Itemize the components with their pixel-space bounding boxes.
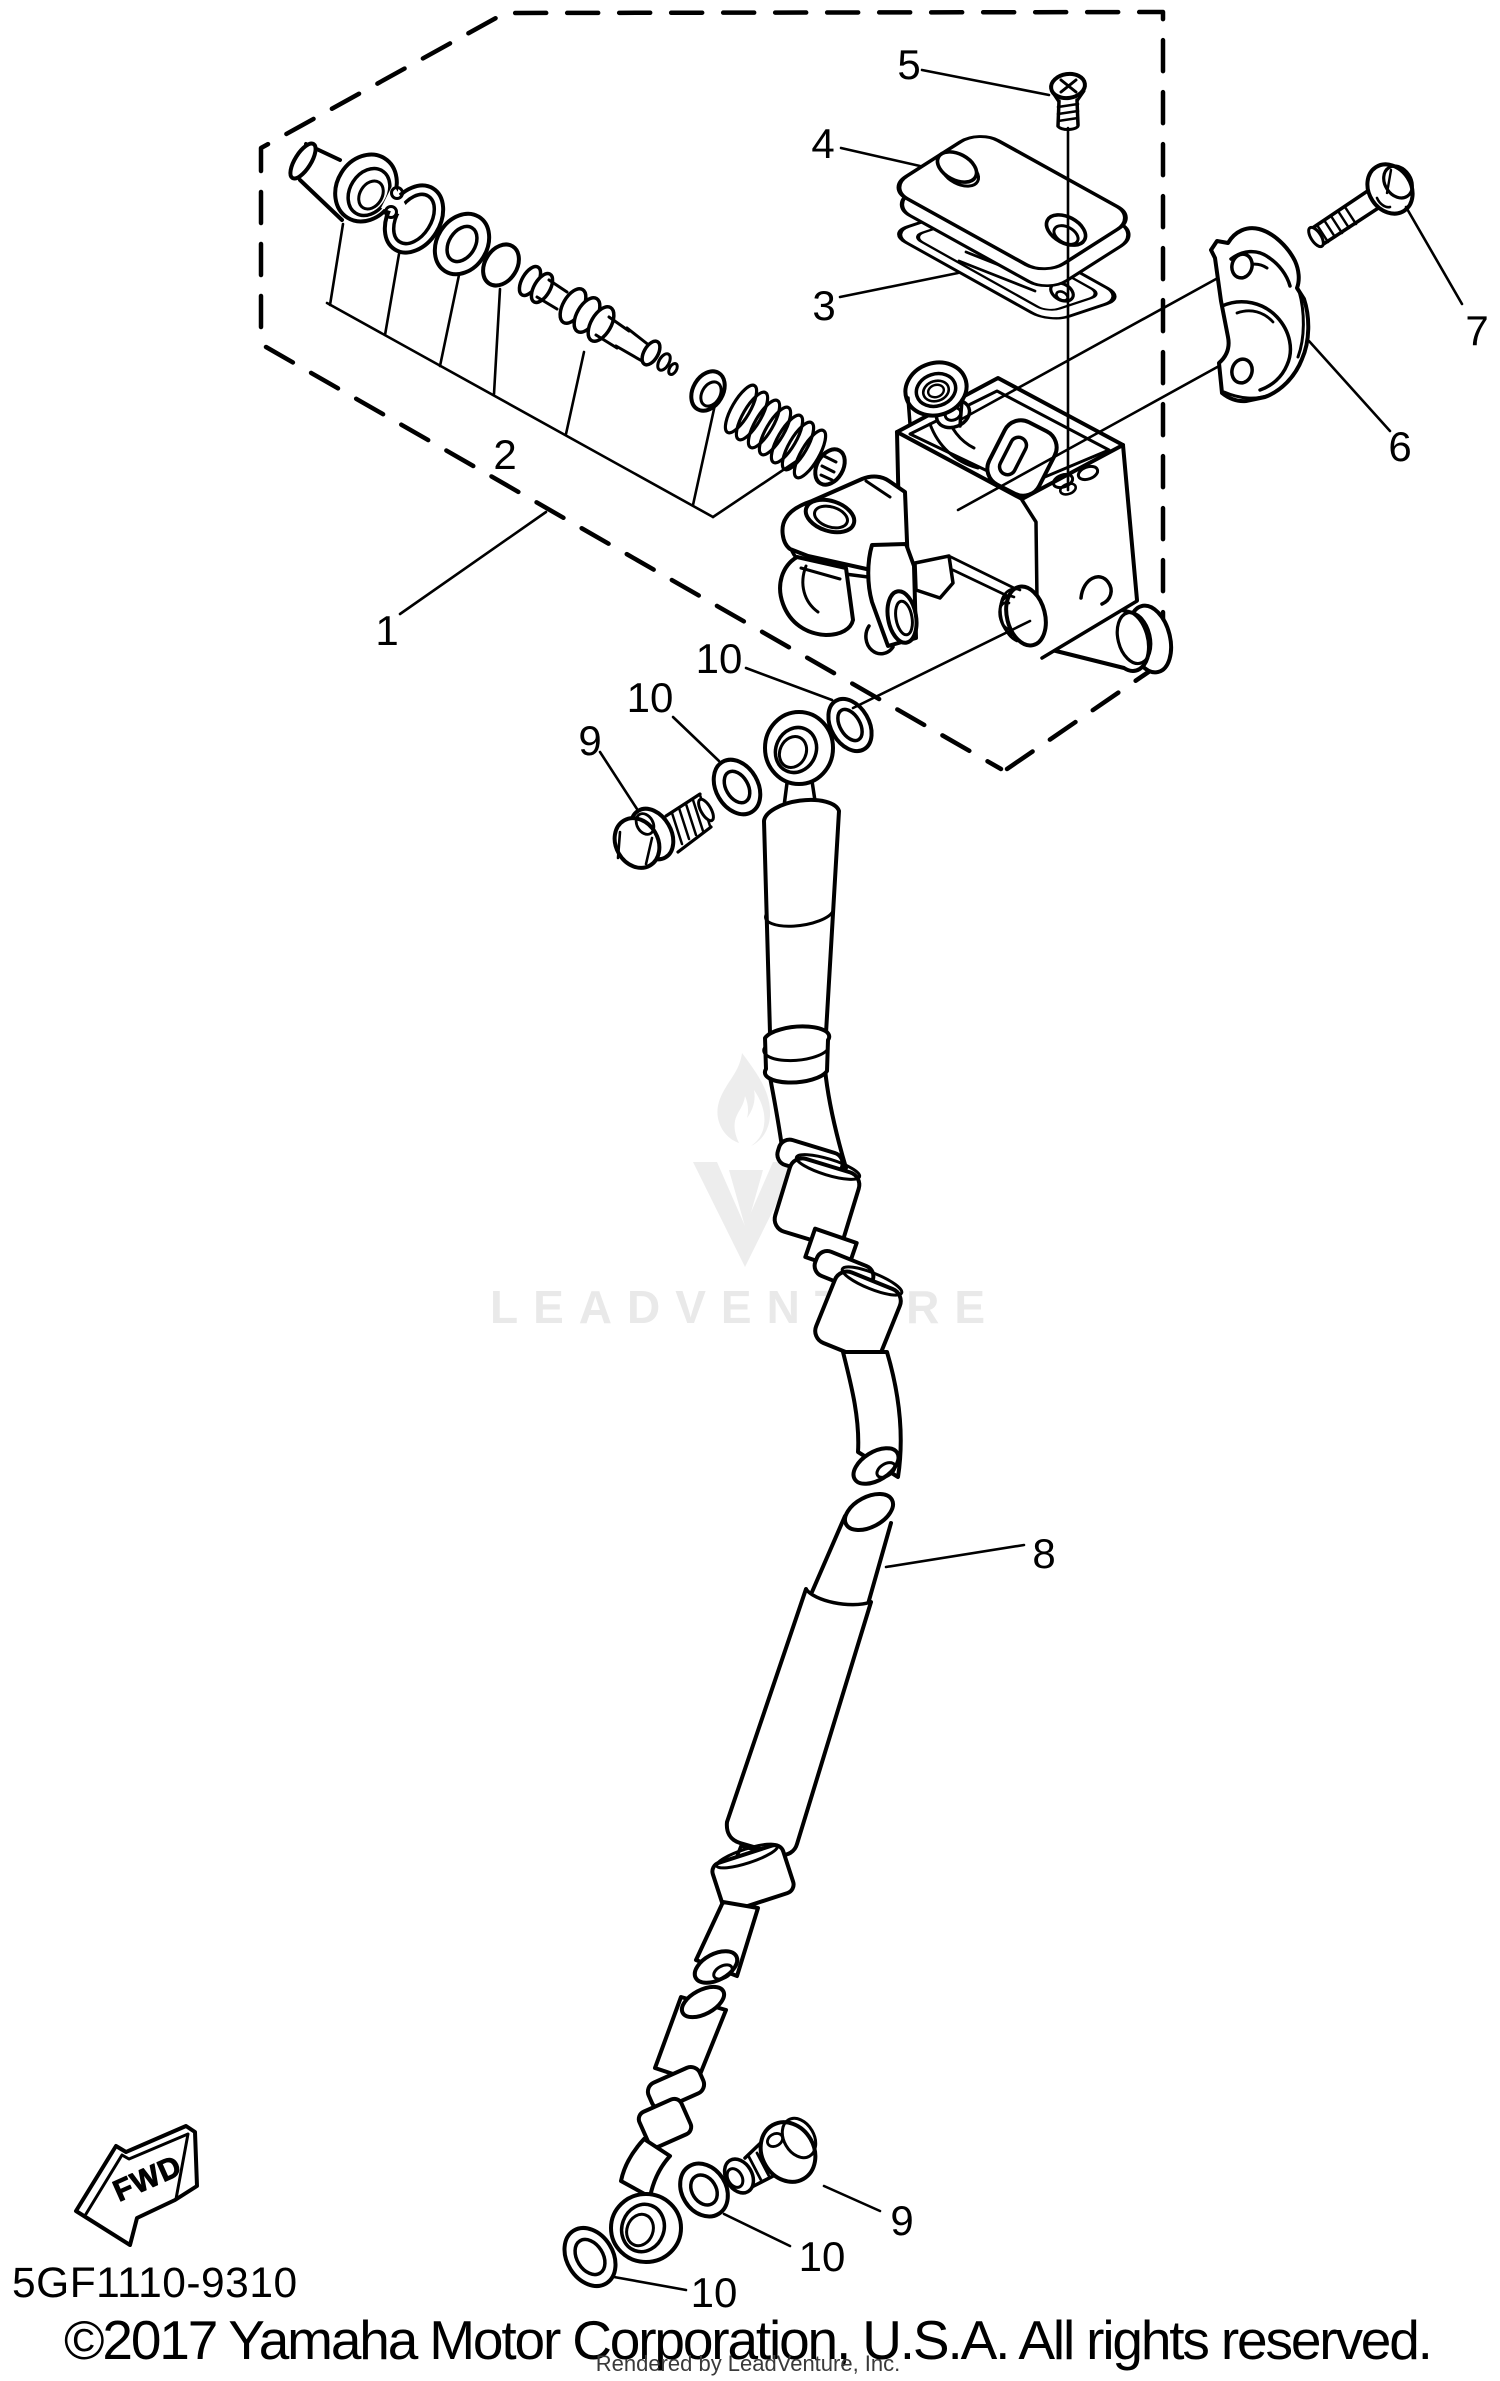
svg-text:1: 1: [375, 607, 398, 654]
svg-text:10: 10: [627, 674, 674, 721]
svg-text:2: 2: [493, 431, 516, 478]
svg-text:Rendered by LeadVenture, Inc.: Rendered by LeadVenture, Inc.: [596, 2351, 901, 2376]
svg-text:4: 4: [811, 120, 834, 167]
svg-text:3: 3: [812, 282, 835, 329]
svg-text:9: 9: [890, 2197, 913, 2244]
svg-text:9: 9: [578, 717, 601, 764]
svg-text:5: 5: [897, 41, 920, 88]
svg-text:6: 6: [1388, 423, 1411, 470]
svg-text:10: 10: [696, 635, 743, 682]
svg-text:10: 10: [799, 2233, 846, 2280]
svg-text:LEADVENTURE: LEADVENTURE: [490, 1281, 1000, 1333]
svg-text:8: 8: [1032, 1530, 1055, 1577]
svg-text:7: 7: [1465, 307, 1488, 354]
svg-text:5GF1110-9310: 5GF1110-9310: [12, 2260, 298, 2307]
